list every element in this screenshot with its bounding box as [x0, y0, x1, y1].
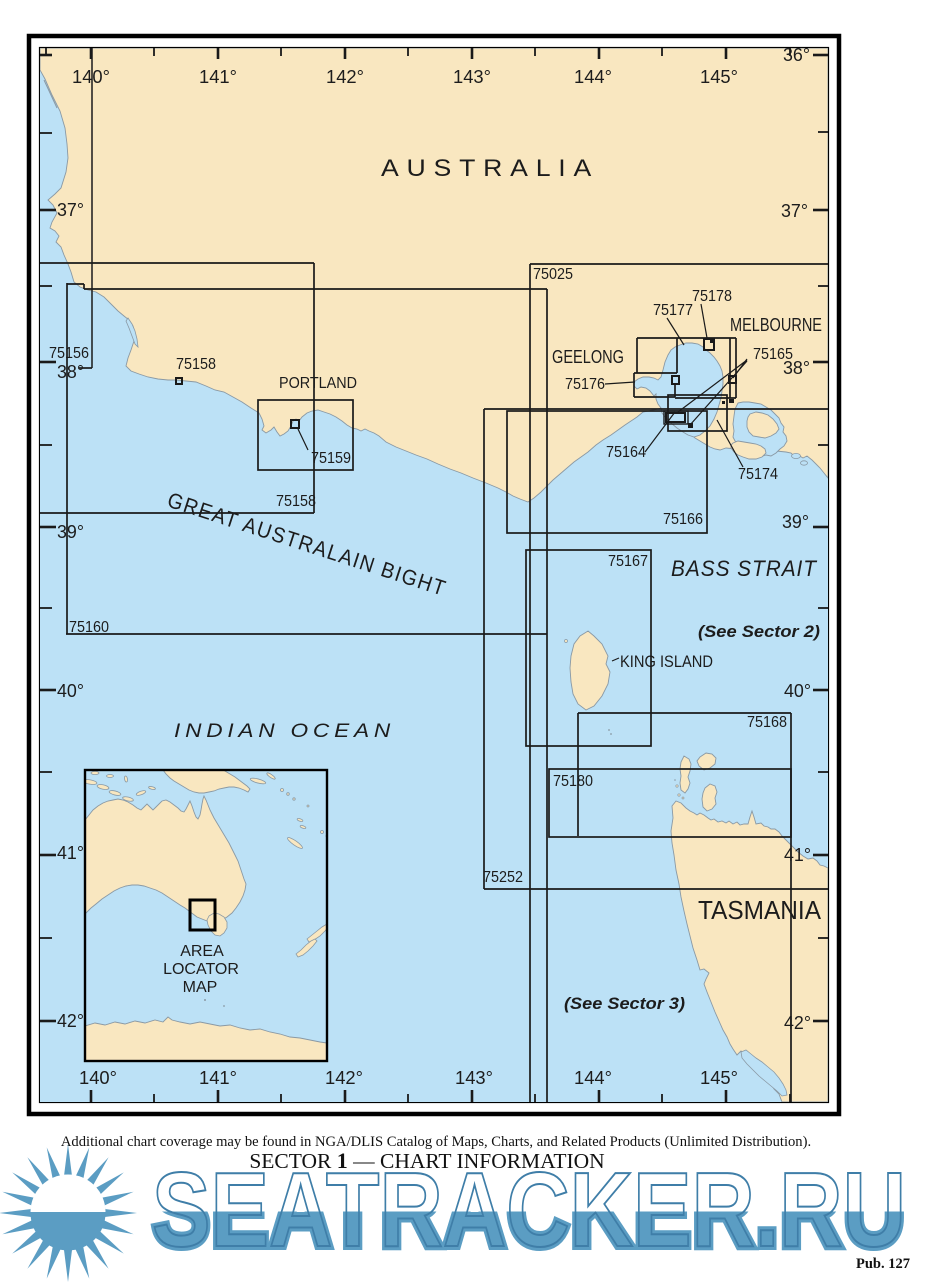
svg-text:42°: 42° [57, 1010, 84, 1031]
svg-text:38°: 38° [783, 357, 810, 378]
svg-text:(See Sector 3): (See Sector 3) [564, 995, 686, 1013]
svg-text:75180: 75180 [553, 773, 593, 790]
svg-text:145°: 145° [700, 1067, 738, 1088]
svg-text:75168: 75168 [747, 714, 787, 731]
svg-text:37°: 37° [57, 199, 84, 220]
svg-text:38°: 38° [57, 361, 84, 382]
svg-text:75252: 75252 [483, 869, 523, 886]
svg-text:40°: 40° [784, 680, 811, 701]
svg-text:75178: 75178 [692, 288, 732, 305]
svg-text:Additional chart coverage may: Additional chart coverage may be found i… [61, 1134, 811, 1150]
svg-text:41°: 41° [57, 842, 84, 863]
svg-text:INDIAN OCEAN: INDIAN OCEAN [174, 721, 395, 742]
svg-text:141°: 141° [199, 1067, 237, 1088]
svg-text:75164: 75164 [606, 444, 646, 461]
svg-text:AUSTRALIA: AUSTRALIA [381, 155, 599, 182]
svg-text:143°: 143° [453, 66, 491, 87]
svg-text:36°: 36° [783, 44, 810, 65]
svg-text:BASS STRAIT: BASS STRAIT [671, 556, 818, 581]
svg-text:(See Sector 2): (See Sector 2) [698, 623, 821, 641]
svg-text:MAP: MAP [183, 979, 218, 996]
svg-text:37°: 37° [781, 200, 808, 221]
svg-text:MELBOURNE: MELBOURNE [730, 315, 822, 335]
svg-text:KING ISLAND: KING ISLAND [620, 652, 713, 671]
svg-text:41°: 41° [784, 844, 811, 865]
svg-text:140°: 140° [79, 1067, 117, 1088]
svg-text:144°: 144° [574, 66, 612, 87]
svg-text:AREA: AREA [180, 943, 224, 960]
svg-text:75025: 75025 [533, 266, 573, 283]
svg-text:75167: 75167 [608, 553, 648, 570]
svg-text:Pub. 127: Pub. 127 [856, 1256, 910, 1272]
svg-text:144°: 144° [574, 1067, 612, 1088]
svg-text:141°: 141° [199, 66, 237, 87]
svg-text:75159: 75159 [311, 450, 351, 467]
svg-text:140°: 140° [72, 66, 110, 87]
svg-text:142°: 142° [326, 66, 364, 87]
svg-text:75156: 75156 [49, 345, 89, 362]
svg-text:142°: 142° [325, 1067, 363, 1088]
svg-text:143°: 143° [455, 1067, 493, 1088]
svg-text:75176: 75176 [565, 376, 605, 393]
svg-text:75174: 75174 [738, 466, 778, 483]
svg-text:GEELONG: GEELONG [552, 347, 624, 367]
svg-text:75166: 75166 [663, 511, 703, 528]
svg-text:75158: 75158 [176, 356, 216, 373]
svg-text:42°: 42° [784, 1012, 811, 1033]
svg-text:145°: 145° [700, 66, 738, 87]
svg-text:40°: 40° [57, 680, 84, 701]
svg-text:TASMANIA: TASMANIA [698, 895, 822, 925]
svg-text:75160: 75160 [69, 619, 109, 636]
svg-text:75158: 75158 [276, 493, 316, 510]
svg-text:39°: 39° [782, 511, 809, 532]
svg-text:SEATRACKER.RU: SEATRACKER.RU [152, 1151, 906, 1269]
svg-text:39°: 39° [57, 521, 84, 542]
svg-text:75177: 75177 [653, 302, 693, 319]
svg-text:LOCATOR: LOCATOR [163, 961, 239, 978]
svg-text:PORTLAND: PORTLAND [279, 375, 357, 392]
